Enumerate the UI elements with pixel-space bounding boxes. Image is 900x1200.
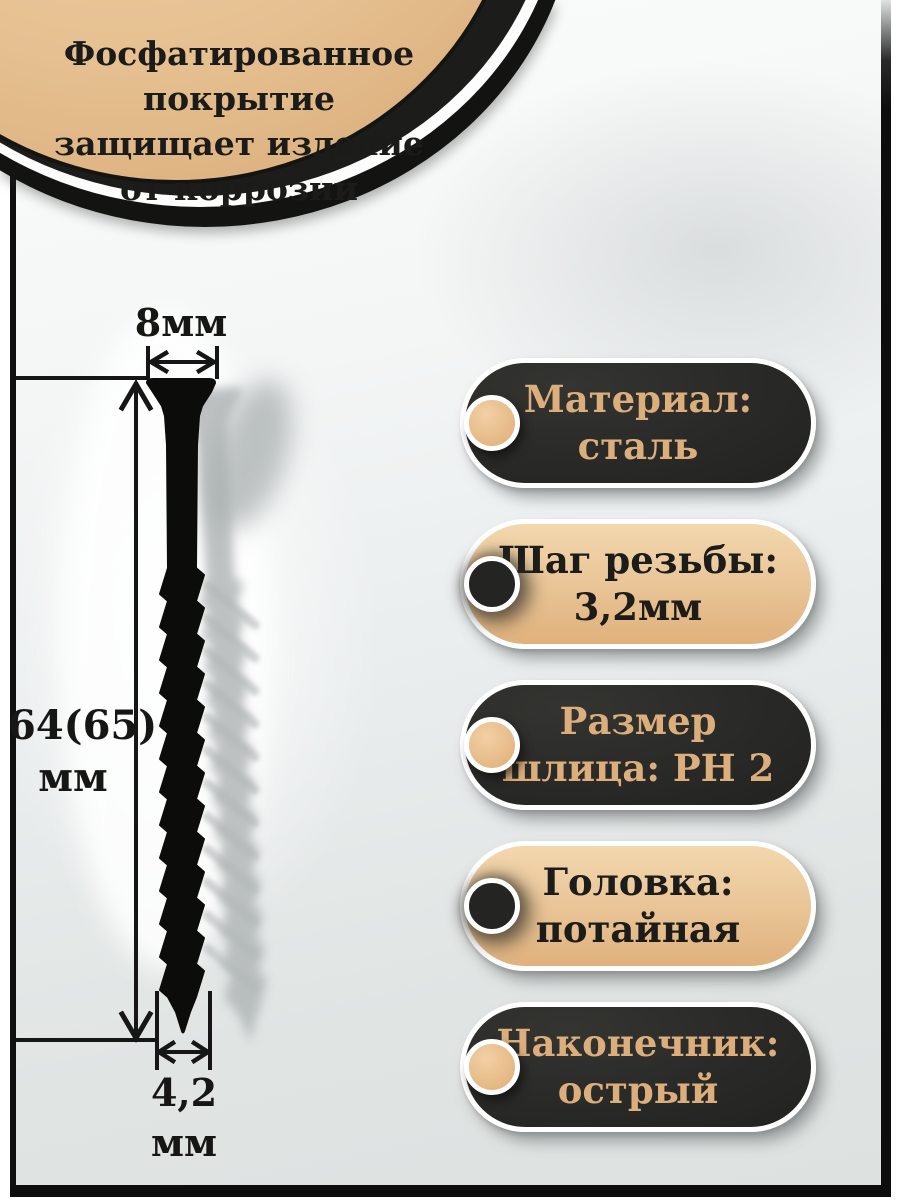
- callout-line: Фосфатированное покрытие: [0, 31, 478, 121]
- frame-border-bottom: [10, 1185, 891, 1197]
- spec-line: Наконечник:: [497, 1020, 780, 1067]
- spec-line: 3,2мм: [574, 584, 703, 631]
- callout-line: от коррозии: [0, 166, 478, 211]
- spec-line: Размер: [560, 698, 717, 745]
- bullet-dot: [464, 717, 520, 773]
- spec-line: Головка:: [542, 859, 733, 906]
- spec-line: острый: [558, 1067, 719, 1114]
- bullet-dot: [464, 395, 520, 451]
- tip-diameter-unit: мм: [128, 1118, 240, 1168]
- callout-line: защищает изделие: [0, 121, 478, 166]
- length-value: 64(65): [8, 700, 138, 752]
- spec-pill-thread-pitch: Шаг резьбы: 3,2мм: [460, 519, 816, 649]
- tip-diameter-value: 4,2: [128, 1068, 240, 1118]
- bullet-dot: [464, 1039, 520, 1095]
- spec-badges: Материал: сталь Шаг резьбы: 3,2мм Размер…: [460, 358, 816, 1132]
- length-label: 64(65) мм: [8, 700, 138, 804]
- tip-diameter-label: 4,2 мм: [128, 1068, 240, 1168]
- frame-border-right: [881, 0, 891, 1187]
- spec-line: Материал:: [524, 376, 752, 423]
- head-width-label: 8мм: [118, 302, 244, 344]
- spec-line: Шаг резьбы:: [498, 537, 778, 584]
- spec-pill-head-type: Головка: потайная: [460, 841, 816, 971]
- spec-line: сталь: [578, 423, 699, 470]
- bullet-dot: [464, 556, 520, 612]
- length-unit: мм: [8, 752, 138, 804]
- bullet-dot: [464, 878, 520, 934]
- spec-pill-drive-size: Размер шлица: PH 2: [460, 680, 816, 810]
- spec-pill-material: Материал: сталь: [460, 358, 816, 488]
- spec-pill-tip-type: Наконечник: острый: [460, 1002, 816, 1132]
- callout-text: Фосфатированное покрытие защищает издели…: [0, 31, 478, 211]
- spec-line: шлица: PH 2: [502, 745, 775, 792]
- spec-line: потайная: [536, 906, 741, 953]
